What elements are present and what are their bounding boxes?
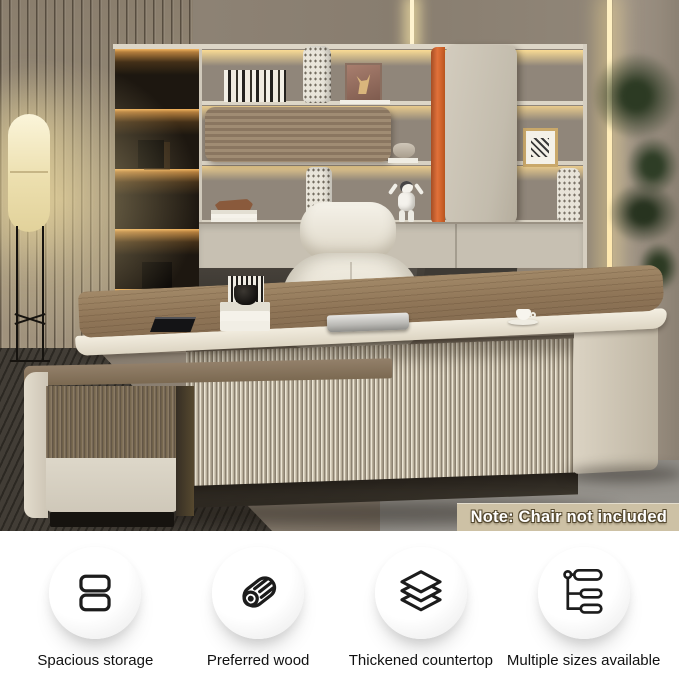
astronaut-body <box>398 192 415 211</box>
teacup-handle <box>530 312 536 318</box>
wood-sliding-door <box>205 107 391 162</box>
frame-artwork <box>531 138 549 157</box>
return-unit-base <box>50 512 174 527</box>
feature-label: Preferred wood <box>207 652 310 669</box>
led-strip-top <box>410 0 414 48</box>
wood-log-icon <box>231 566 285 620</box>
feature-preferred-wood: Preferred wood <box>177 547 340 669</box>
lamp-leg <box>42 226 44 362</box>
black-cup <box>234 285 258 305</box>
books <box>340 100 390 104</box>
tall-cabinet-door <box>445 45 517 225</box>
teacup <box>508 308 540 326</box>
books <box>224 70 286 102</box>
desk-shadow <box>566 466 679 482</box>
feature-multiple-sizes: Multiple sizes available <box>502 547 665 669</box>
perforated-vase <box>557 168 580 222</box>
feature-label: Spacious storage <box>37 652 153 669</box>
laptop <box>327 313 410 333</box>
feature-circle <box>212 547 304 639</box>
desk-books-stack <box>220 302 270 331</box>
return-unit-shadow-gap <box>176 386 194 516</box>
desk-right-side-panel <box>574 308 658 474</box>
shelf-led-glow <box>199 166 583 181</box>
lamp-foot <box>10 360 50 362</box>
decor-bowl <box>393 143 415 158</box>
chair-not-included-badge: Note: Chair not included <box>457 503 679 531</box>
orange-accent-panel <box>431 47 445 224</box>
books <box>211 210 257 222</box>
shelf-led-glow <box>199 50 583 66</box>
return-unit-drawer <box>46 458 178 512</box>
lamp-leg <box>16 226 18 362</box>
size-options-icon <box>557 566 611 620</box>
feature-label: Multiple sizes available <box>507 652 660 669</box>
return-unit-ribbed-front <box>46 386 178 458</box>
cabinet-seam <box>455 224 457 268</box>
feature-thickened-countertop: Thickened countertop <box>340 547 503 669</box>
layers-icon <box>393 565 449 621</box>
bookshelf-right-edge <box>583 44 587 268</box>
lamp-seam <box>10 171 48 173</box>
feature-label: Thickened countertop <box>349 652 493 669</box>
perforated-vase <box>303 46 331 103</box>
product-image: Note: Chair not included Spacious storag… <box>0 0 679 679</box>
drawers-icon <box>68 566 122 620</box>
feature-circle <box>49 547 141 639</box>
feature-strip: Spacious storage Preferred wood <box>0 531 679 679</box>
desk-cable-grommet <box>150 317 196 332</box>
floor-lamp-shade <box>8 114 50 232</box>
feature-circle <box>538 547 630 639</box>
astronaut-figurine <box>390 181 422 223</box>
office-chair-headrest <box>300 202 396 260</box>
office-scene-photo: Note: Chair not included <box>0 0 679 531</box>
astronaut-arm <box>388 183 398 195</box>
feature-spacious-storage: Spacious storage <box>14 547 177 669</box>
books <box>388 158 418 163</box>
feature-circle <box>375 547 467 639</box>
return-unit-side <box>24 372 48 518</box>
